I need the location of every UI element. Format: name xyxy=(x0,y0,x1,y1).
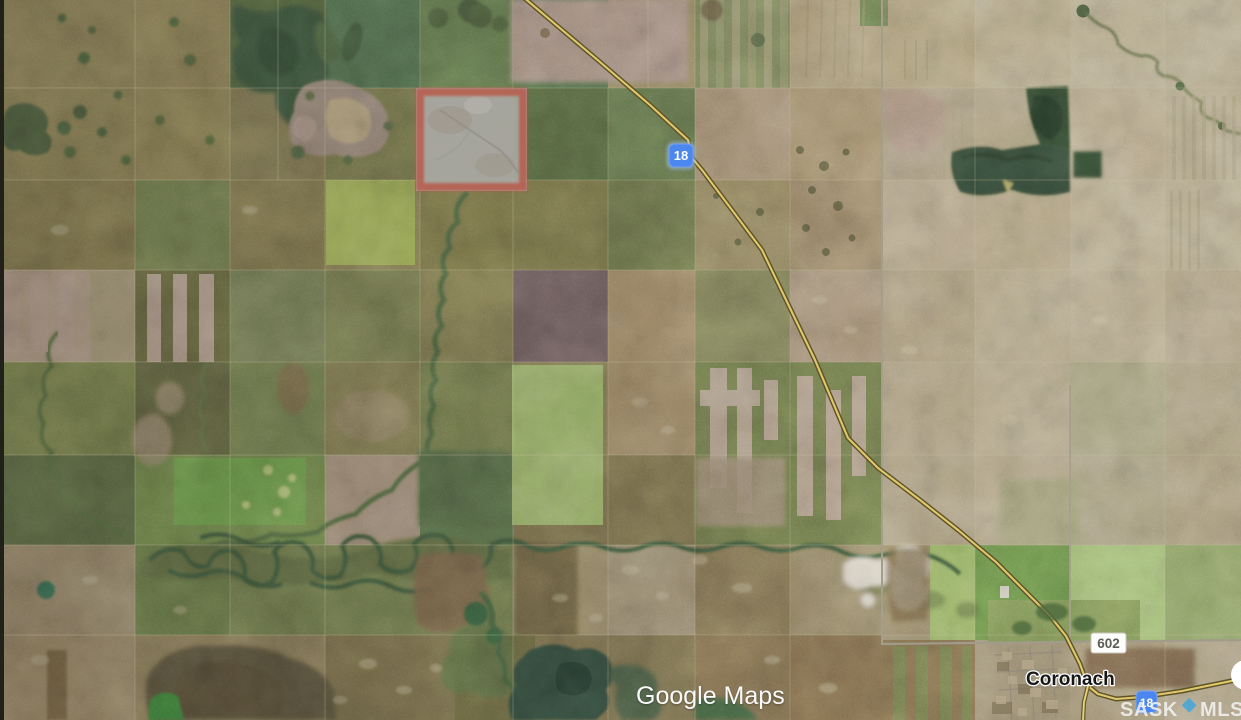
svg-text:602: 602 xyxy=(1097,636,1120,651)
svg-text:SASK: SASK xyxy=(1120,699,1178,720)
svg-text:MLS: MLS xyxy=(1200,699,1241,720)
svg-text:Coronach: Coronach xyxy=(1026,669,1115,690)
svg-text:Google Maps: Google Maps xyxy=(636,682,785,710)
svg-text:18: 18 xyxy=(674,148,688,163)
